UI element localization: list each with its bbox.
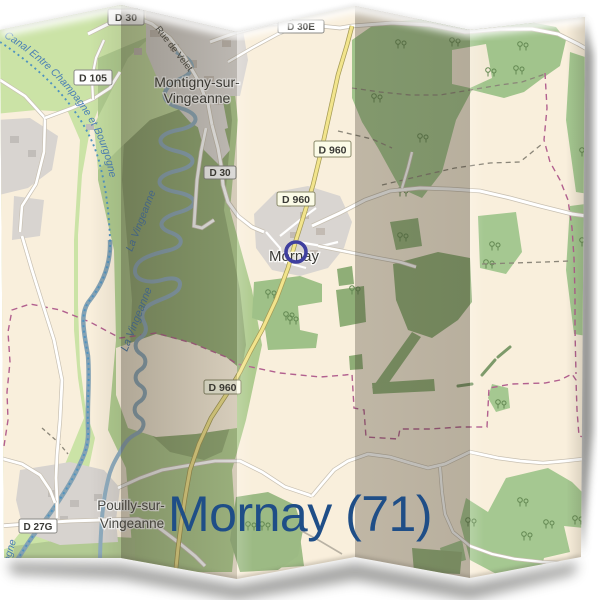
svg-text:D 960: D 960 bbox=[318, 145, 346, 157]
svg-text:D 27G: D 27G bbox=[24, 522, 53, 533]
svg-text:D 960: D 960 bbox=[282, 194, 310, 206]
svg-text:Mornay (71): Mornay (71) bbox=[168, 486, 432, 542]
